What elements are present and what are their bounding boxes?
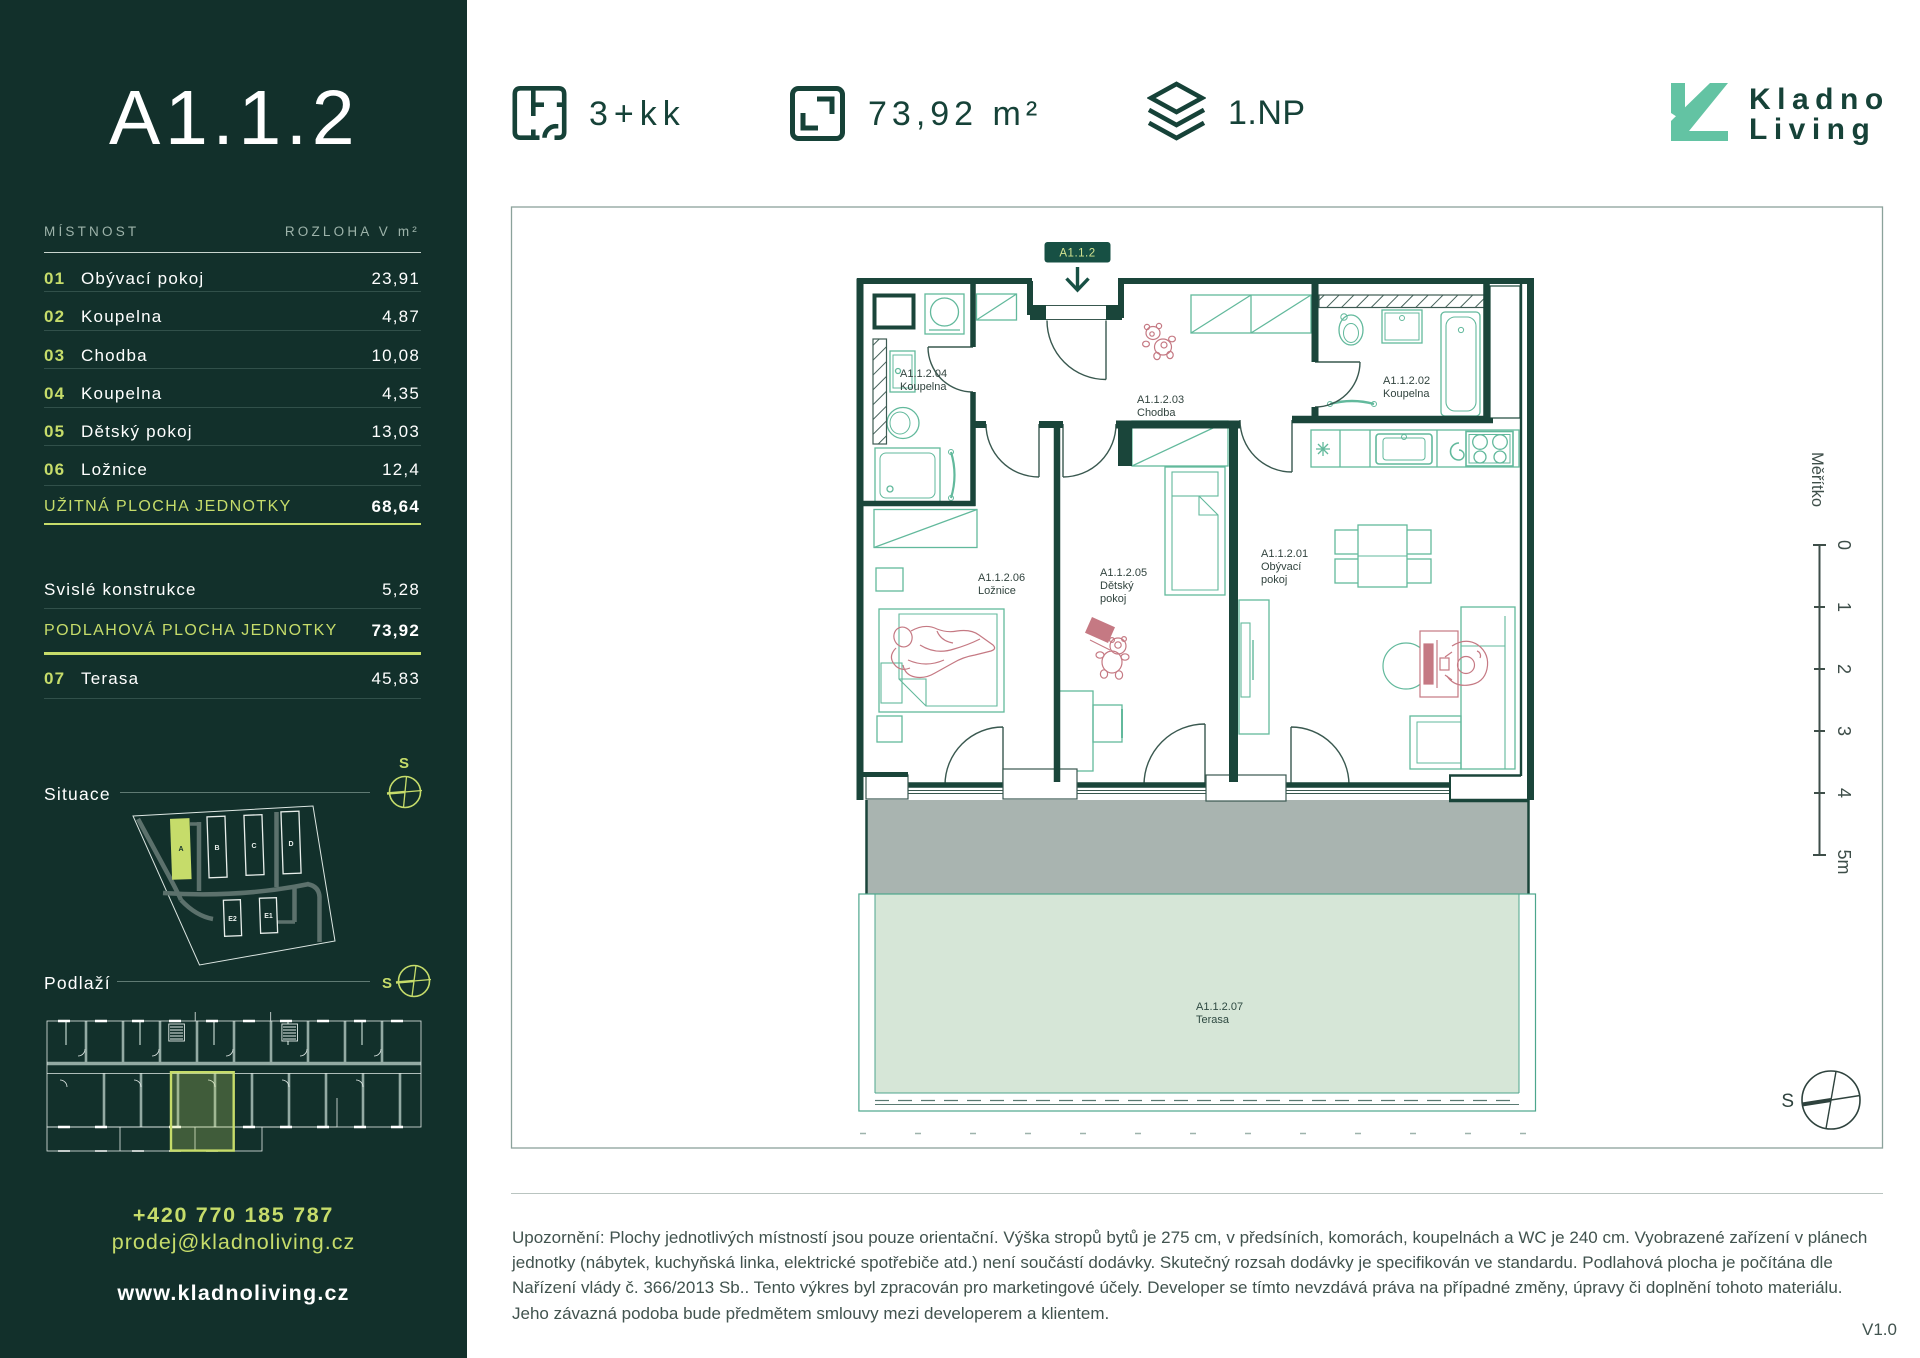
svg-text:E1: E1	[264, 913, 273, 920]
svg-text:4: 4	[1834, 788, 1854, 798]
svg-text:C: C	[251, 843, 256, 850]
svg-text:A1.1.2.07: A1.1.2.07	[1196, 1001, 1243, 1013]
svg-text:5m: 5m	[1834, 849, 1854, 874]
svg-text:A1.1.2.02: A1.1.2.02	[1383, 375, 1430, 387]
svg-text:A1.1.2: A1.1.2	[1059, 248, 1095, 260]
svg-text:pokoj: pokoj	[1261, 574, 1287, 586]
svg-text:2: 2	[1834, 664, 1854, 674]
svg-text:Koupelna: Koupelna	[900, 381, 947, 393]
svg-text:A1.1.2.04: A1.1.2.04	[900, 368, 947, 380]
svg-text:E2: E2	[228, 916, 237, 923]
svg-text:pokoj: pokoj	[1100, 593, 1126, 605]
svg-text:A1.1.2.05: A1.1.2.05	[1100, 567, 1147, 579]
svg-text:1: 1	[1834, 602, 1854, 612]
svg-text:Obývací: Obývací	[1261, 561, 1301, 573]
svg-text:S: S	[1781, 1091, 1794, 1112]
svg-text:Ložnice: Ložnice	[978, 585, 1016, 597]
svg-text:D: D	[288, 841, 293, 848]
svg-text:A1.1.2.01: A1.1.2.01	[1261, 548, 1308, 560]
svg-text:Terasa: Terasa	[1196, 1014, 1230, 1026]
svg-text:Dětský: Dětský	[1100, 580, 1134, 592]
svg-text:Měřítko: Měřítko	[1808, 452, 1826, 507]
svg-text:Chodba: Chodba	[1137, 407, 1176, 419]
svg-text:3: 3	[1834, 726, 1854, 736]
svg-text:A: A	[178, 846, 183, 853]
svg-text:0: 0	[1834, 540, 1854, 550]
svg-text:A1.1.2.03: A1.1.2.03	[1137, 394, 1184, 406]
svg-text:A1.1.2.06: A1.1.2.06	[978, 572, 1025, 584]
svg-text:Koupelna: Koupelna	[1383, 388, 1430, 400]
svg-text:B: B	[214, 845, 219, 852]
svg-text:S: S	[382, 975, 392, 992]
svg-text:S: S	[399, 755, 409, 772]
